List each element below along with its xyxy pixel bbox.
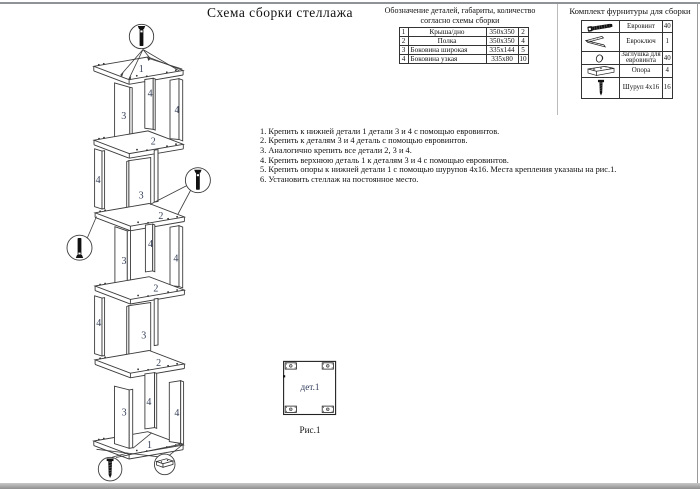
svg-text:4: 4 bbox=[146, 397, 151, 408]
svg-text:1: 1 bbox=[139, 64, 144, 75]
svg-text:4: 4 bbox=[148, 89, 153, 100]
svg-text:3: 3 bbox=[122, 256, 127, 267]
svg-text:1: 1 bbox=[147, 440, 152, 451]
svg-text:3: 3 bbox=[139, 190, 144, 201]
svg-text:2: 2 bbox=[156, 358, 161, 369]
svg-text:2: 2 bbox=[151, 137, 156, 148]
svg-text:4: 4 bbox=[96, 318, 101, 329]
svg-text:4: 4 bbox=[173, 253, 178, 264]
svg-text:4: 4 bbox=[96, 175, 101, 186]
svg-text:4: 4 bbox=[175, 105, 180, 116]
svg-text:3: 3 bbox=[122, 408, 127, 419]
svg-text:4: 4 bbox=[174, 408, 179, 419]
svg-text:2: 2 bbox=[158, 211, 163, 222]
svg-text:4: 4 bbox=[148, 239, 153, 250]
svg-text:3: 3 bbox=[121, 111, 126, 122]
svg-text:2: 2 bbox=[153, 283, 158, 294]
svg-text:3: 3 bbox=[141, 330, 146, 341]
